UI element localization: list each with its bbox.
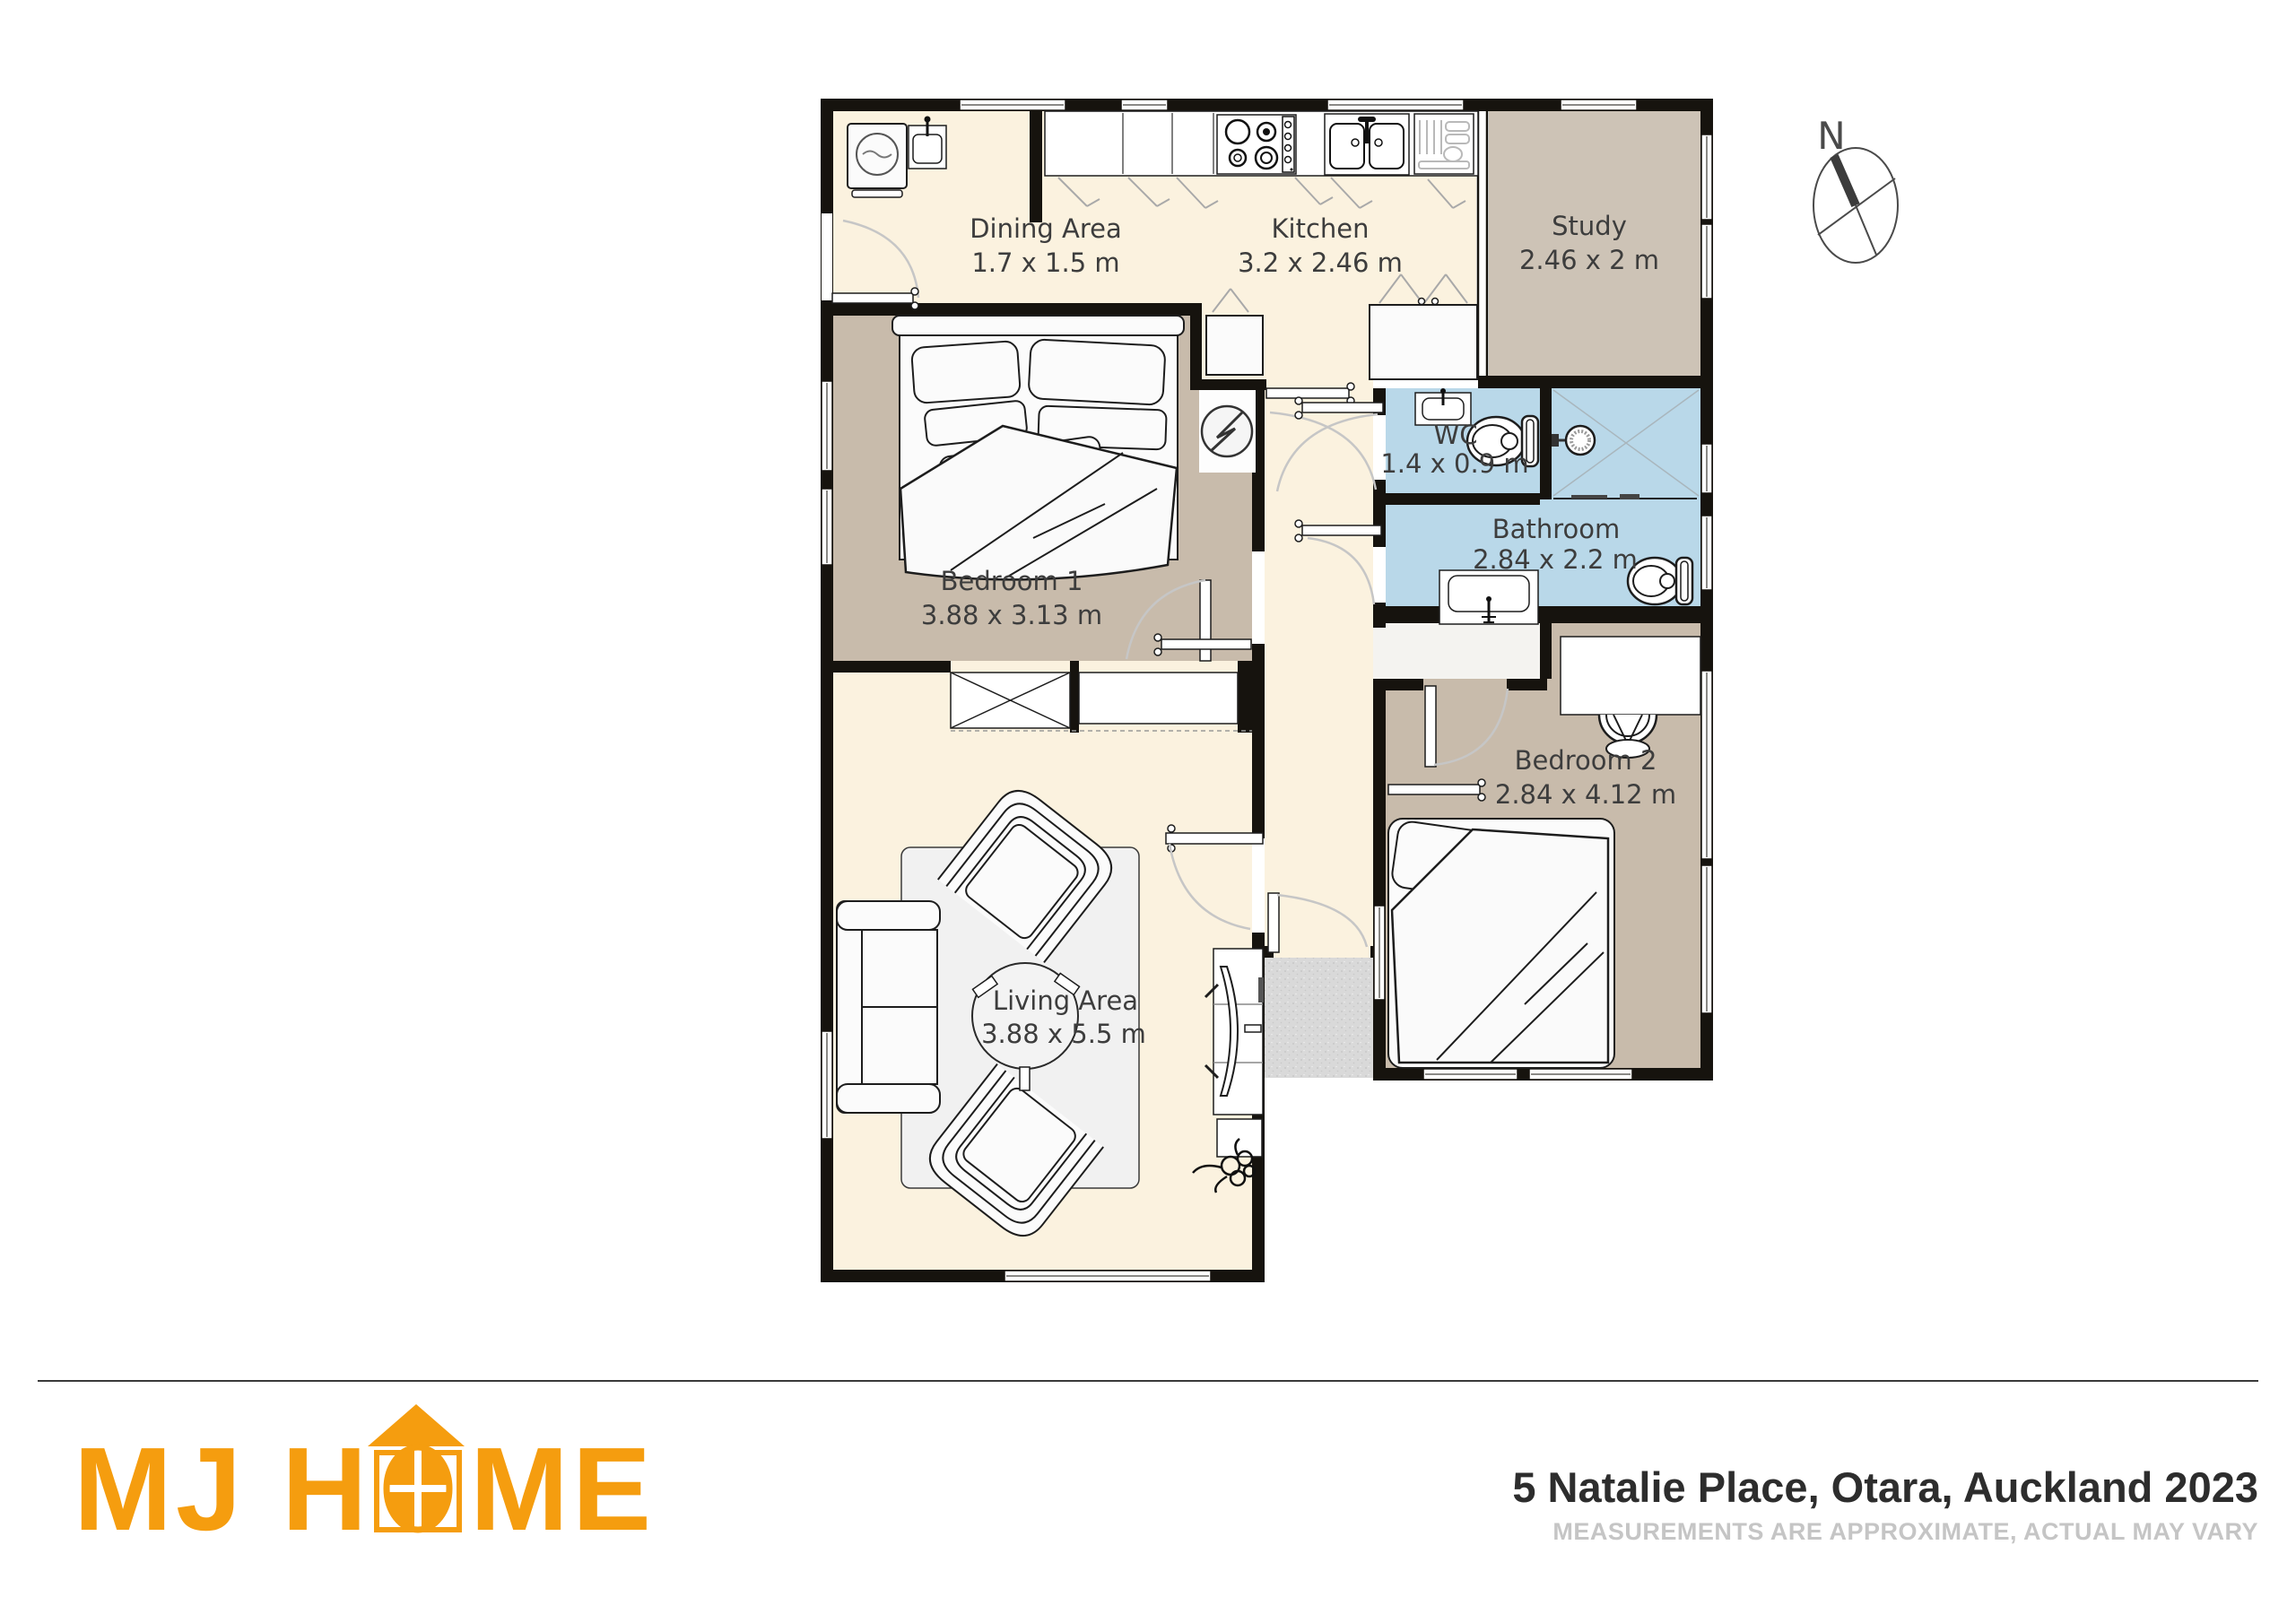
label-bedroom1: Bedroom 1 xyxy=(941,566,1083,596)
bed-1 xyxy=(892,316,1184,579)
sofa xyxy=(837,901,940,1113)
brand-text-right: ME xyxy=(470,1423,655,1555)
floor-plan: Dining Area 1.7 x 1.5 m Kitchen 3.2 x 2.… xyxy=(821,99,1713,1282)
label-bedroom2: Bedroom 2 xyxy=(1515,745,1657,776)
label-dining-dims: 1.7 x 1.5 m xyxy=(971,247,1119,278)
label-bathroom: Bathroom xyxy=(1492,514,1620,544)
bedroom2-nook-fill xyxy=(1386,623,1540,679)
wardrobe xyxy=(951,673,1070,728)
label-study-dims: 2.46 x 2 m xyxy=(1519,245,1659,275)
address: 5 Natalie Place, Otara, Auckland 2023 xyxy=(1512,1463,2258,1511)
label-dining: Dining Area xyxy=(970,213,1122,244)
closet xyxy=(1079,673,1238,724)
entry-porch xyxy=(1265,958,1373,1078)
label-bedroom2-dims: 2.84 x 4.12 m xyxy=(1495,779,1676,810)
label-living: Living Area xyxy=(993,985,1138,1016)
compass: N xyxy=(1813,114,1898,263)
compass-needle xyxy=(1834,156,1856,205)
kitchen-sink-icon xyxy=(1325,114,1409,175)
stove-icon xyxy=(1217,115,1296,174)
bed-2 xyxy=(1388,819,1614,1068)
label-wc-dims: 1.4 x 0.9 m xyxy=(1380,448,1528,479)
label-bathroom-dims: 2.84 x 2.2 m xyxy=(1473,544,1638,575)
logo-house-icon xyxy=(368,1404,465,1532)
bathroom-vanity-icon xyxy=(1439,570,1538,624)
north-label: N xyxy=(1817,114,1845,158)
label-study: Study xyxy=(1552,211,1627,241)
label-bedroom1-dims: 3.88 x 3.13 m xyxy=(921,600,1102,630)
floorplan-page: Dining Area 1.7 x 1.5 m Kitchen 3.2 x 2.… xyxy=(0,0,2296,1623)
brand-logo: MJ H ME xyxy=(74,1404,655,1555)
label-wc: WC xyxy=(1434,420,1478,450)
study-fill xyxy=(1487,111,1700,376)
footer: MJ H ME 5 Natalie Place, Otara, Auckland… xyxy=(38,1381,2258,1555)
dishwasher-icon xyxy=(1414,114,1474,174)
disclaimer: MEASUREMENTS ARE APPROXIMATE, ACTUAL MAY… xyxy=(1552,1518,2258,1545)
brand-text-left: MJ H xyxy=(74,1423,370,1555)
label-kitchen-dims: 3.2 x 2.46 m xyxy=(1238,247,1403,278)
label-kitchen: Kitchen xyxy=(1272,213,1370,244)
electrical-panel-icon xyxy=(1199,390,1256,473)
label-living-dims: 3.88 x 5.5 m xyxy=(981,1019,1146,1049)
